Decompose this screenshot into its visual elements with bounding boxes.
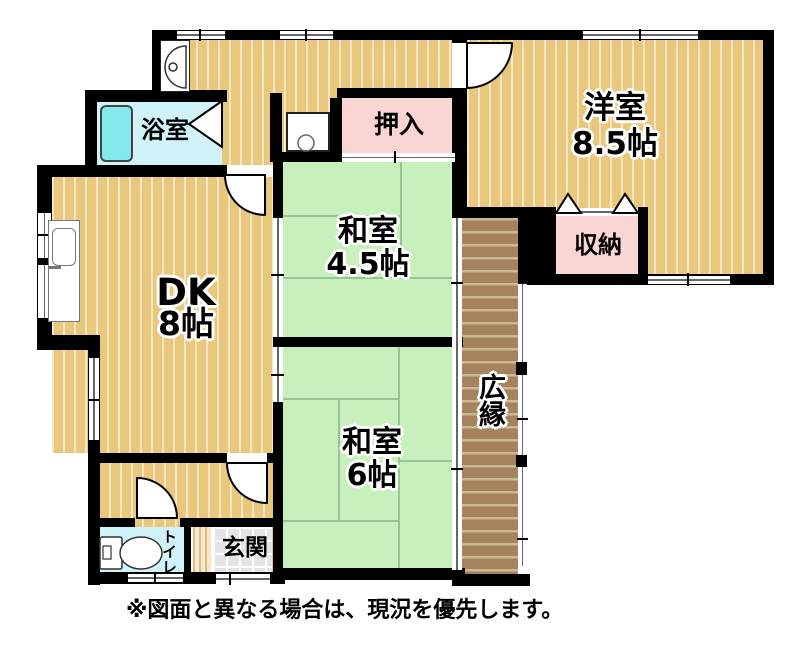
- storage-folding-door-icon: [613, 194, 638, 213]
- door-arc-western: [467, 43, 512, 88]
- room-oshiire-label: 押入: [362, 112, 436, 137]
- room-western-size: 8.5帖: [545, 129, 685, 160]
- room-washitsu6-size: 6帖: [302, 461, 442, 491]
- disclaimer-note: ※図面と異なる場合は、現況を優先します。: [126, 600, 563, 622]
- toilet-bowl-icon: [120, 537, 162, 569]
- room-dk-size: 8帖: [116, 307, 256, 340]
- storage-folding-door-icon: [556, 194, 581, 213]
- room-washitsu45-label: 和室: [298, 217, 438, 247]
- door-arc-toilet: [137, 478, 177, 518]
- room-storage-label: 収納: [561, 233, 635, 257]
- door-arc-dk: [225, 175, 265, 215]
- room-hiroen-label: 広縁: [476, 368, 503, 432]
- washbasin-drain-icon: [169, 63, 177, 71]
- toilet-handle-icon: [103, 546, 111, 559]
- room-toilet-label: トイレ: [161, 528, 176, 574]
- room-western-label: 洋室: [545, 93, 685, 124]
- room-bathroom-label: 浴室: [130, 118, 200, 142]
- room-genkan-label: 玄関: [217, 537, 273, 560]
- door-arc-hall: [227, 463, 267, 503]
- washer-drain-icon: [298, 135, 314, 151]
- room-washitsu6-label: 和室: [302, 428, 442, 458]
- room-washitsu45-size: 4.5帖: [298, 250, 438, 280]
- floor-plan: 洋室 8.5帖 和室 4.5帖 和室 6帖 DK 8帖 浴室 押入 収納 玄関 …: [0, 0, 800, 651]
